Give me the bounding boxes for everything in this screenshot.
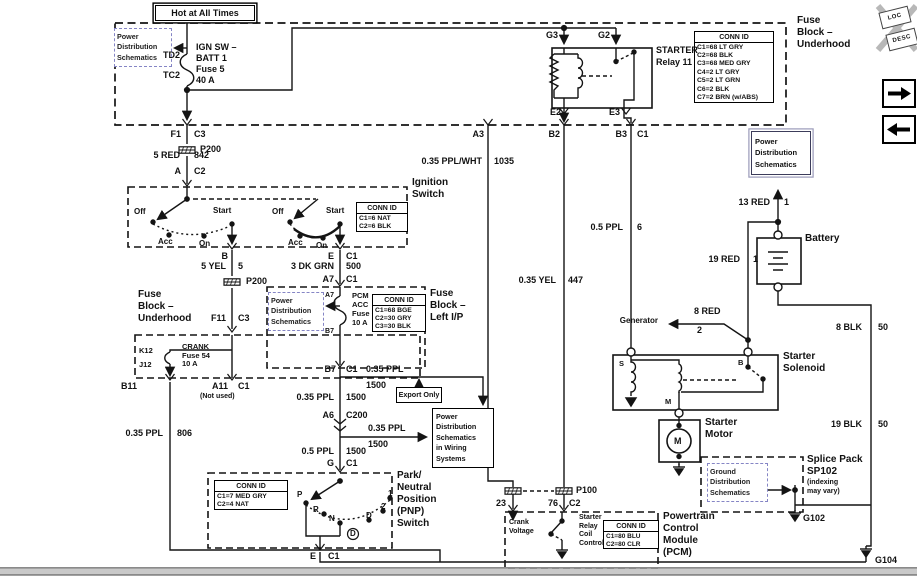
fuse-pin-b7: B7 xyxy=(316,328,334,335)
ground-g104-label: G104 xyxy=(875,556,915,565)
ign-pos-on-2: On xyxy=(316,242,327,250)
wire-5-yel: 5 YEL xyxy=(166,262,226,271)
p100-label: P100 xyxy=(576,486,597,495)
wire-19-red: 19 RED xyxy=(680,255,740,264)
pin-b11: B11 xyxy=(121,382,137,391)
ref-power-dist-schematics-1[interactable]: Power Distribution Schematics xyxy=(114,28,172,67)
pin-e-ign: E xyxy=(306,252,334,261)
crank-fuse-label: CRANKFuse 54 10 A xyxy=(182,343,210,368)
ignition-switch-label: IgnitionSwitch xyxy=(412,178,448,202)
export-only-tag: Export Only xyxy=(396,387,442,403)
fuse5-label: IGN SW –BATT 1 Fuse 540 A xyxy=(196,43,237,85)
pnp-pos-1: 1 xyxy=(388,490,392,498)
motor-m-glyph: M xyxy=(674,437,682,446)
pin-f1: F1 xyxy=(151,130,181,139)
wiring-diagram-page: Hot at All Times Power Distribution Sche… xyxy=(0,0,917,582)
pin-e-c1: C1 xyxy=(346,252,358,261)
circuit-1500-c: 1500 xyxy=(368,440,388,449)
pcm-acc-fuse-element xyxy=(334,296,346,325)
starter-relay-label: STARTERRelay 11 xyxy=(656,46,698,67)
battery-label: Battery xyxy=(805,234,839,244)
pin-a11: A11 xyxy=(198,382,228,391)
pin-b3-c1: C1 xyxy=(637,130,649,139)
ref-power-dist-schematics-3[interactable]: Power Distribution Schematics xyxy=(751,131,811,175)
connector-c200: C200 xyxy=(346,411,368,420)
pin-e2: E2 xyxy=(533,108,561,117)
ign-pos-start-1: Start xyxy=(213,207,231,215)
pin-e3: E3 xyxy=(592,108,620,117)
circuit-1035: 1035 xyxy=(494,157,514,166)
circuit-2: 2 xyxy=(697,326,702,335)
pin-b: B xyxy=(200,252,228,261)
wire-19-blk: 19 BLK xyxy=(804,420,862,429)
wire-035-yel: 0.35 YEL xyxy=(496,276,556,285)
pin-g3: G3 xyxy=(528,31,558,40)
fuse-block-underhood-label: FuseBlock – Underhood xyxy=(797,16,850,52)
p200-grommet-2 xyxy=(224,279,240,285)
fuse-block-left-ip-label: FuseBlock – Left I/P xyxy=(430,289,466,325)
crank-fuse-element xyxy=(165,352,170,364)
wire-035-ppl-wht: 0.35 PPL/WHT xyxy=(412,157,482,166)
pin-f11-c3: C3 xyxy=(238,314,250,323)
wire-3-dk-grn: 3 DK GRN xyxy=(274,262,334,271)
splice-pack-label-1: Splice Pack xyxy=(807,455,863,465)
pin-b2: B2 xyxy=(530,130,560,139)
starter-solenoid-label: StarterSolenoid xyxy=(783,352,825,376)
previous-page-button[interactable] xyxy=(883,116,915,143)
pin-e-pnp: E xyxy=(288,552,316,561)
p200-label-2: P200 xyxy=(246,277,267,286)
splice-pack-note-2: may vary) xyxy=(807,488,840,495)
circuit-842: 842 xyxy=(194,151,209,160)
pin-j12: J12 xyxy=(139,361,152,369)
pin-b7-c1: C1 xyxy=(346,365,358,374)
p100-grommet-23 xyxy=(505,488,521,494)
terminal-td2: TD2 xyxy=(152,51,180,60)
wire-035-ppl-806: 0.35 PPL xyxy=(103,429,163,438)
fuse-pin-a7: A7 xyxy=(316,292,334,299)
pin-g2: G2 xyxy=(580,31,610,40)
pin-a-c2: C2 xyxy=(194,167,206,176)
wire-19-red xyxy=(748,222,778,344)
wire-05-ppl-1500: 0.5 PPL xyxy=(274,447,334,456)
pin-23: 23 xyxy=(486,499,506,508)
pin-b7: B7 xyxy=(306,365,336,374)
ign-pos-acc-2: Acc xyxy=(288,239,303,247)
pin-f11: F11 xyxy=(186,314,226,323)
pin-76: 76 xyxy=(538,499,558,508)
wire-035-ppl-c: 0.35 PPL xyxy=(368,424,406,433)
pin-76-c2: C2 xyxy=(569,499,581,508)
wire-05-ppl: 0.5 PPL xyxy=(563,223,623,232)
pin-a3: A3 xyxy=(454,130,484,139)
wire-5-red: 5 RED xyxy=(120,151,180,160)
generator-label: Generator xyxy=(600,317,658,325)
ign-pos-off-2: Off xyxy=(272,208,284,216)
circuit-1500-b: 1500 xyxy=(346,393,366,402)
wire-035-ppl-a: 0.35 PPL xyxy=(366,365,404,374)
ground-g102-label: G102 xyxy=(803,514,825,523)
ign-pos-acc-1: Acc xyxy=(158,238,173,246)
pnp-pos-d-circled: D xyxy=(350,530,356,538)
pcm-label: PowertrainControl Module(PCM) xyxy=(663,512,715,560)
pnp-pos-p: P xyxy=(297,491,302,499)
pnp-pos-d: D xyxy=(366,512,372,520)
circuit-50a: 50 xyxy=(878,323,888,332)
circuit-447: 447 xyxy=(568,276,583,285)
splice-pack-label-2: SP102 xyxy=(807,467,837,477)
pin-k12: K12 xyxy=(139,347,153,355)
starter-solenoid-symbol xyxy=(613,348,778,417)
starter-relay-coil-control-label: StarterRelay CoilControl xyxy=(579,514,604,547)
pnp-pos-n: N xyxy=(329,515,335,523)
pin-a7-c1: C1 xyxy=(346,275,358,284)
wire-8-blk: 8 BLK xyxy=(804,323,862,332)
pin-f1-c3: C3 xyxy=(194,130,206,139)
terminal-s: S xyxy=(619,360,624,368)
pin-g: G xyxy=(306,459,334,468)
pnp-switch-contacts xyxy=(304,479,392,550)
terminal-b: B xyxy=(738,359,743,367)
conn-id-table-underhood: CONN ID C1=68 LT GRY C2=68 BLK C3=68 MED… xyxy=(694,31,774,103)
terminal-m: M xyxy=(665,398,671,406)
ref-ground-dist-schematics[interactable]: Ground Distribution Schematics xyxy=(707,463,768,502)
pin-a6: A6 xyxy=(306,411,334,420)
ref-power-dist-wiring-systems[interactable]: Power Distribution Schematics in Wiring … xyxy=(432,408,494,468)
ign-pos-on-1: On xyxy=(199,240,210,248)
pin-a7: A7 xyxy=(306,275,334,284)
crank-voltage-label: CrankVoltage xyxy=(509,519,534,535)
circuit-1b: 1 xyxy=(753,255,758,264)
circuit-5: 5 xyxy=(238,262,243,271)
fuse5-element xyxy=(180,54,194,86)
p100-grommet-76 xyxy=(556,488,572,494)
wire-8-red: 8 RED xyxy=(694,307,721,316)
circuit-1500-d: 1500 xyxy=(346,447,366,456)
wire-8-red-generator xyxy=(670,324,748,340)
starter-motor-label: StarterMotor xyxy=(705,418,737,442)
pnp-pos-r: R xyxy=(313,506,319,514)
g104-ground-symbol xyxy=(860,546,872,557)
circuit-500: 500 xyxy=(346,262,361,271)
pin-a11-c1: C1 xyxy=(238,382,250,391)
pnp-pos-2: 2 xyxy=(381,503,385,511)
next-page-button[interactable] xyxy=(883,80,915,107)
wire-13-red: 13 RED xyxy=(710,198,770,207)
conn-id-table-left-ip: CONN ID C1=68 BGE C2=30 GRY C3=30 BLK xyxy=(372,294,426,332)
circuit-1a: 1 xyxy=(784,198,789,207)
circuit-50b: 50 xyxy=(878,420,888,429)
starter-motor-symbol xyxy=(659,417,700,475)
pin-a: A xyxy=(151,167,181,176)
pin-e-pnp-c1: C1 xyxy=(328,552,340,561)
pin-b3: B3 xyxy=(597,130,627,139)
ignition-switch-contacts xyxy=(151,187,342,243)
splice-pack-note-1: (indexing xyxy=(807,479,838,486)
circuit-806: 806 xyxy=(177,429,192,438)
relay-coil xyxy=(578,54,583,98)
circuit-1500-a: 1500 xyxy=(366,381,386,390)
conn-id-table-pcm: CONN ID C1=80 BLU C2=80 CLR xyxy=(603,520,659,549)
conn-id-table-ignition: CONN ID C1=6 NAT C2=6 BLK xyxy=(356,202,408,232)
ign-pos-off-1: Off xyxy=(134,208,146,216)
pin-g-c1: C1 xyxy=(346,459,358,468)
circuit-6: 6 xyxy=(637,223,642,232)
pnp-switch-label: Park/Neutral Position(PNP) Switch xyxy=(397,471,436,531)
ign-pos-start-2: Start xyxy=(326,207,344,215)
p200-grommet-1 xyxy=(179,147,195,153)
terminal-tc2: TC2 xyxy=(152,71,180,80)
fuse-block-underhood-label-2: FuseBlock – Underhood xyxy=(138,290,191,326)
not-used-note: (Not used) xyxy=(200,393,235,400)
wire-035-ppl-b: 0.35 PPL xyxy=(274,393,334,402)
conn-id-table-pnp: CONN ID C1=7 MED GRY C2=4 NAT xyxy=(214,480,288,510)
hot-at-all-times-tag: Hot at All Times xyxy=(155,5,255,21)
